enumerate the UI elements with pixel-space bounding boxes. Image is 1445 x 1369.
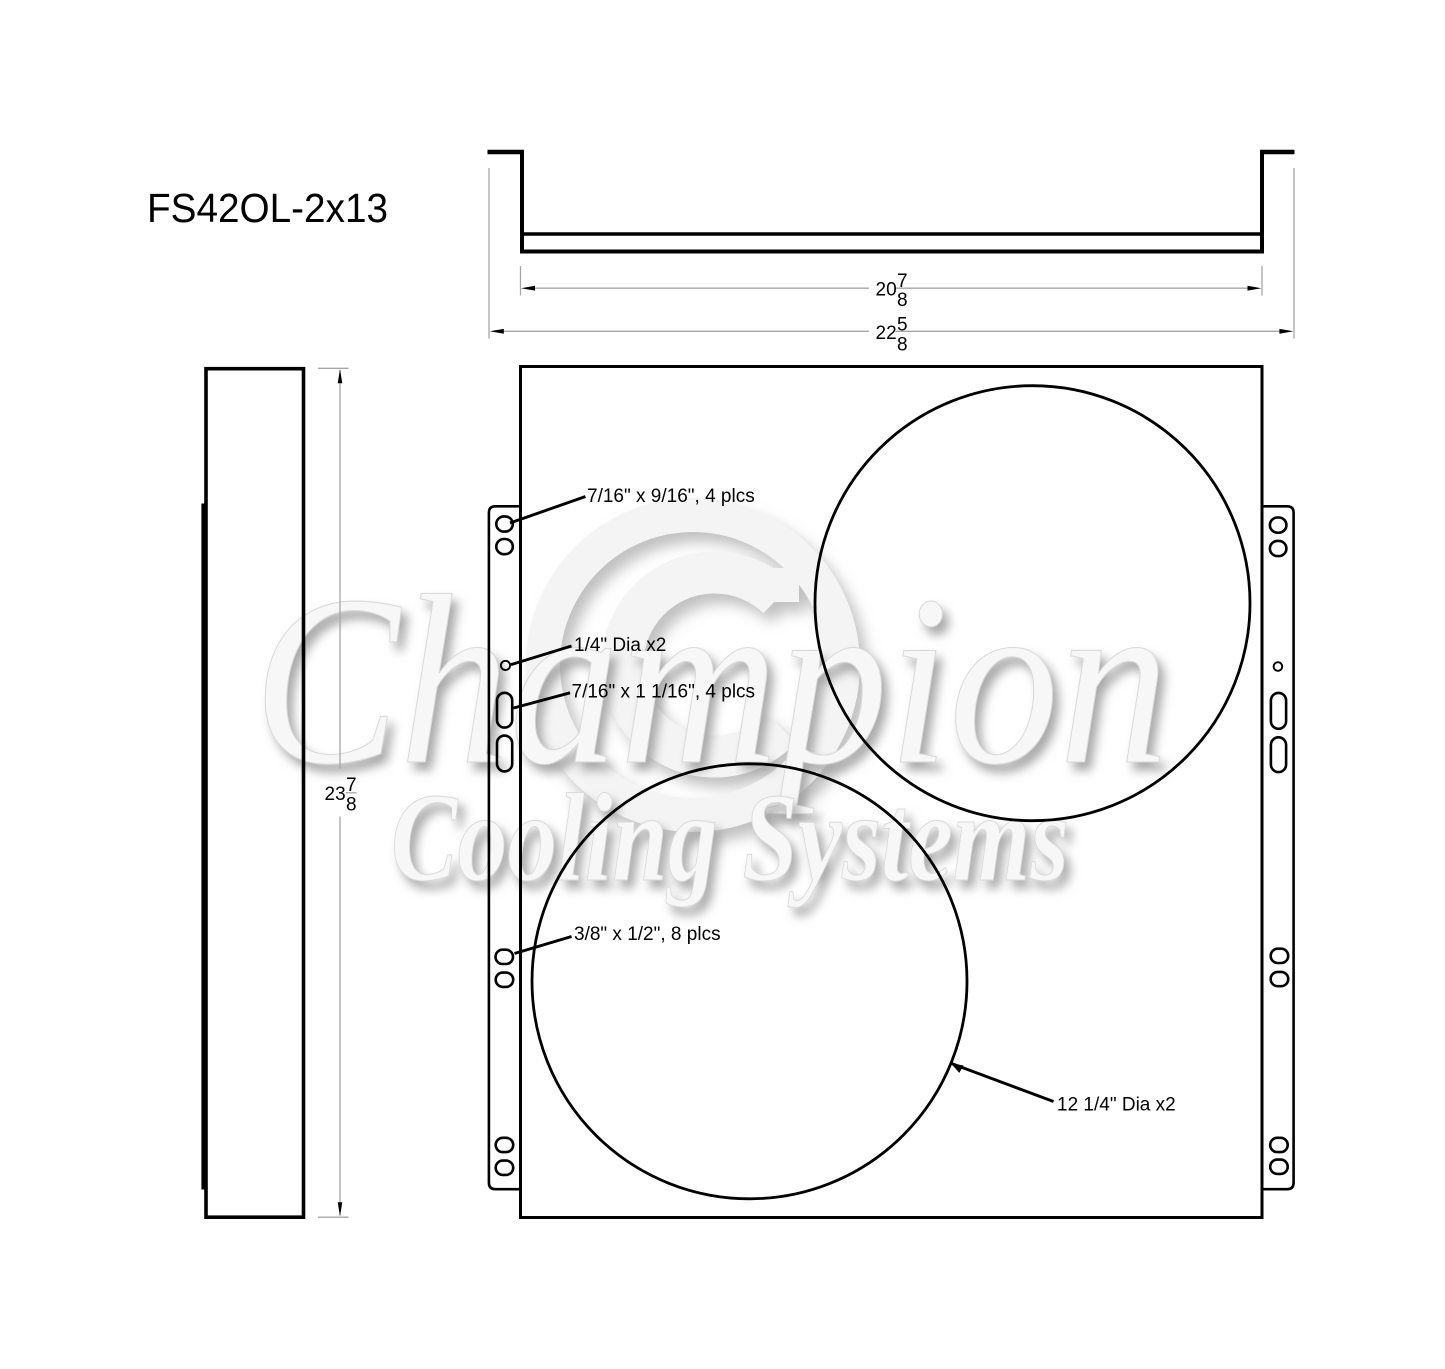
svg-text:Cooling Systems: Cooling Systems: [391, 769, 1069, 908]
svg-text:22: 22: [876, 323, 897, 344]
svg-text:5: 5: [897, 315, 908, 336]
svg-text:7/16" x 1 1/16", 4 plcs: 7/16" x 1 1/16", 4 plcs: [572, 682, 756, 703]
svg-text:8: 8: [346, 795, 357, 816]
svg-text:8: 8: [897, 335, 908, 356]
svg-text:23: 23: [325, 784, 346, 805]
svg-text:1/4" Dia x2: 1/4" Dia x2: [574, 635, 666, 656]
svg-text:20: 20: [876, 280, 897, 301]
svg-text:8: 8: [897, 290, 908, 311]
svg-text:7/16" x 9/16", 4 plcs: 7/16" x 9/16", 4 plcs: [587, 486, 755, 507]
svg-text:12 1/4" Dia x2: 12 1/4" Dia x2: [1057, 1095, 1176, 1116]
svg-text:FS42OL-2x13: FS42OL-2x13: [147, 185, 388, 231]
svg-text:3/8" x 1/2", 8 plcs: 3/8" x 1/2", 8 plcs: [574, 924, 721, 945]
svg-text:7: 7: [897, 271, 908, 292]
